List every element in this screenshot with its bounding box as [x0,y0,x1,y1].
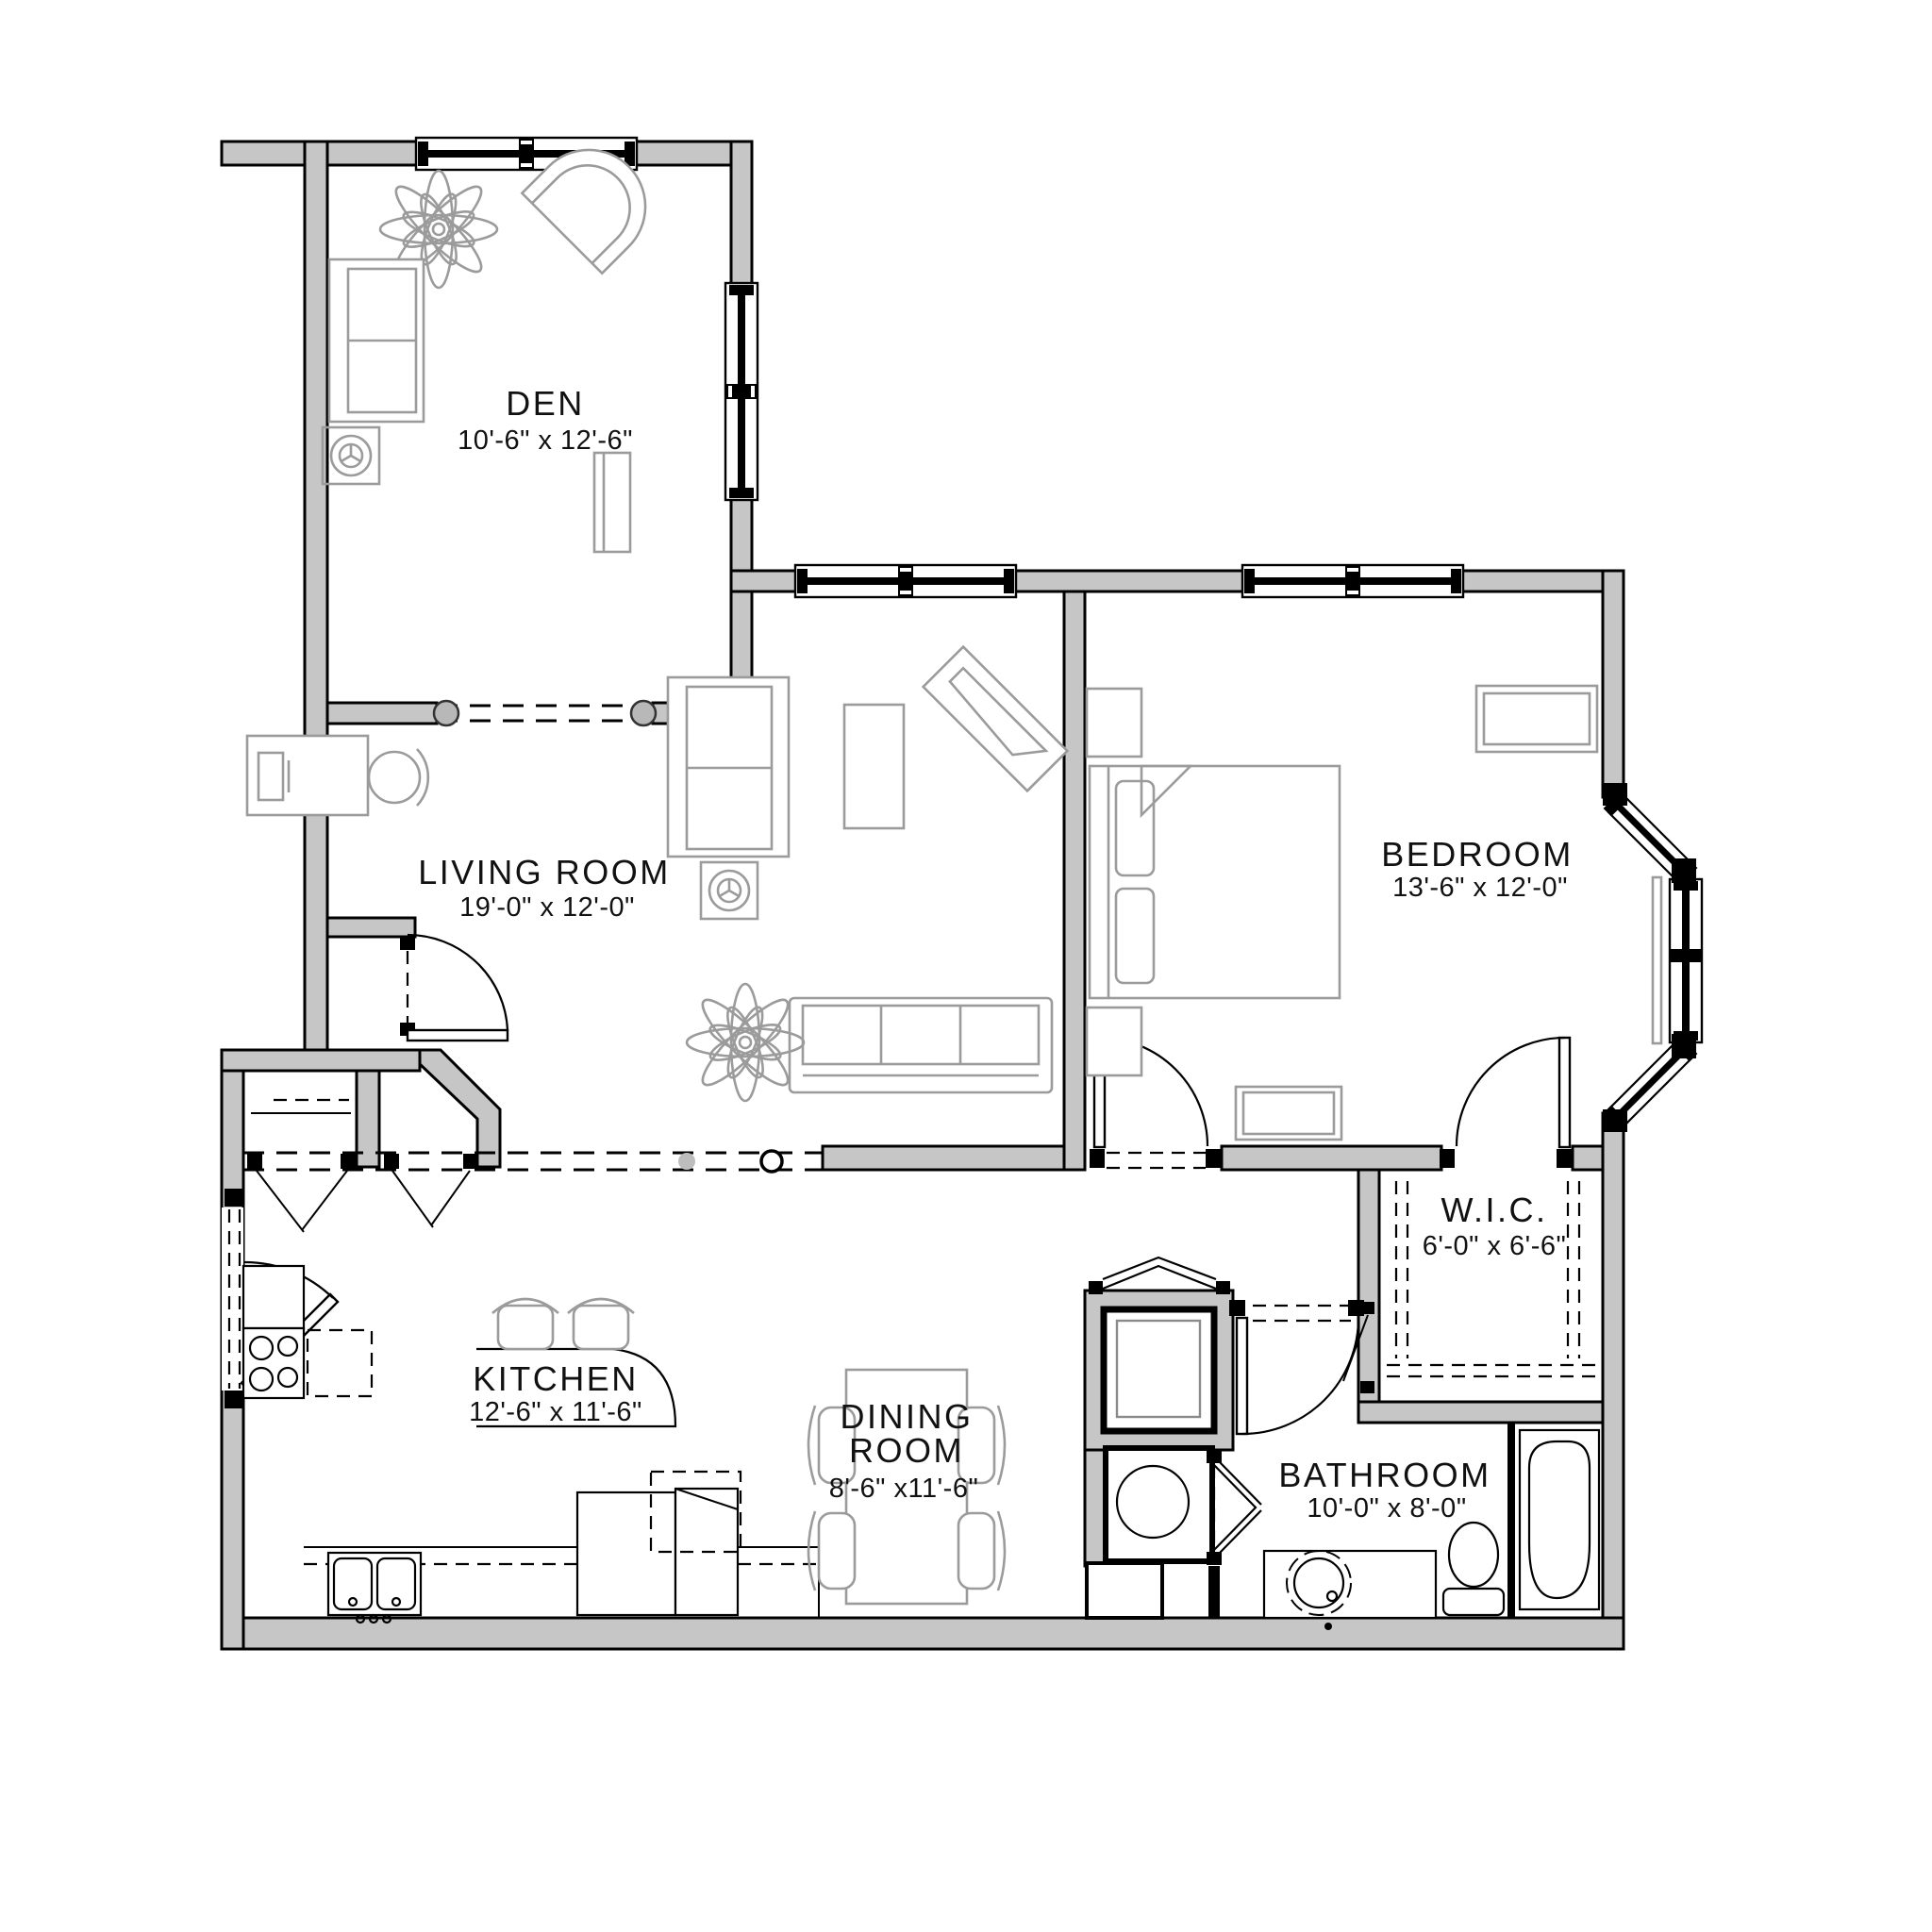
wall-stub-laundry [1208,1566,1220,1618]
bay-corner-block [1603,783,1627,806]
dining-chair [958,1511,1005,1591]
window-living-north [795,565,1016,597]
wall-tub-partition [1507,1423,1515,1618]
water-heater [1117,1321,1200,1417]
wall-wic-south [1358,1402,1603,1423]
wall-east-lower [1603,1113,1624,1649]
wall-bedroom-south-mid [1222,1146,1441,1170]
stool [568,1299,634,1349]
pillow [1116,889,1154,983]
hall-marker-ring [761,1151,782,1172]
dining-dims: 8'-6" x11'-6" [829,1474,979,1504]
desk-chair [369,752,420,803]
mech-closet-doors [1089,1257,1230,1294]
living-label: LIVING ROOM [418,853,671,891]
bed [1090,766,1340,998]
windows [416,138,1702,1132]
laundry-nook [1106,1448,1212,1561]
dresser [1476,686,1597,752]
bedroom-label: BEDROOM [1381,835,1574,874]
bay-window [1603,783,1702,1132]
wall-living-south [823,1146,1064,1170]
column-den-opening-left [434,701,458,725]
bay-corner-block [1672,1034,1696,1058]
vanity [1264,1551,1436,1618]
window-den-east [725,283,758,500]
dishwasher [577,1492,675,1615]
bay-corner-block [1672,858,1696,883]
living-dims: 19'-0" x 12'-0" [459,892,635,923]
wall-den-south-left [327,703,437,724]
nightstand [1087,689,1141,757]
wic-door [1440,1038,1572,1168]
wic-dims: 6'-0" x 6'-6" [1423,1231,1567,1261]
wall-wic-west [1358,1170,1379,1402]
floor-plan-drawing: DEN 10'-6" x 12'-6" LIVING ROOM 19'-0" x… [0,0,1932,1932]
dining-label-line1: DINING [841,1397,974,1436]
wall-entry-angled [420,1050,500,1167]
living-side-table [701,862,758,919]
den-cabinet [594,453,630,552]
den-loveseat [329,259,424,422]
wall-bedroom-south-right [1573,1146,1603,1170]
bedroom-dims: 13'-6" x 12'-0" [1392,873,1568,903]
plant-icon [687,984,804,1101]
wic-label: W.I.C. [1441,1191,1548,1229]
desk [247,736,428,815]
wall-closet-top [327,918,415,937]
upper-cabinet-dashed [308,1330,372,1396]
bedroom-furniture [1087,686,1597,1140]
toilet [1443,1523,1504,1615]
hall-marker-dot [678,1153,695,1170]
living-loveseat [668,677,789,857]
den-dims: 10'-6" x 12'-6" [458,425,633,456]
coffee-table [844,705,904,828]
wall-entry-top [222,1050,420,1071]
pillow [1116,781,1154,875]
column-den-opening-right [631,701,656,725]
kitchen-dims: 12'-6" x 11'-6" [469,1397,642,1427]
sofa [790,998,1052,1092]
wall-bedroom-east-upper [1603,571,1624,797]
bay-corner-block [1603,1109,1627,1132]
floor-plan-page: DEN 10'-6" x 12'-6" LIVING ROOM 19'-0" x… [0,0,1932,1932]
bathtub [1520,1430,1599,1609]
bay-window-sill [1653,877,1661,1043]
bathroom-door [1229,1300,1364,1434]
kitchen-fixtures [243,1266,819,1623]
tv-stand [924,647,1068,791]
den-label: DEN [506,384,585,423]
den-side-table [323,427,379,484]
wall-laundry-west [1085,1450,1106,1566]
bench [1236,1087,1341,1140]
wall-living-bedroom [1064,591,1085,1170]
bathroom-dims: 10'-0" x 8'-0" [1307,1493,1466,1524]
den-furniture [323,126,669,552]
linen-closet [1087,1563,1162,1618]
kitchen-sink [328,1553,421,1623]
kitchen-label: KITCHEN [473,1359,639,1398]
nightstand [1087,1008,1141,1075]
wall-south [222,1618,1624,1649]
window-bedroom-north [1242,565,1463,597]
floor-dot [1324,1623,1332,1630]
living-closet-door [400,935,508,1041]
dining-label-line2: ROOM [849,1431,964,1470]
bathroom-label: BATHROOM [1278,1456,1491,1494]
wall-west-den-living [305,142,327,1050]
dining-chair [808,1511,855,1591]
refrigerator [243,1266,304,1328]
stool [492,1299,558,1349]
stove [243,1328,304,1398]
